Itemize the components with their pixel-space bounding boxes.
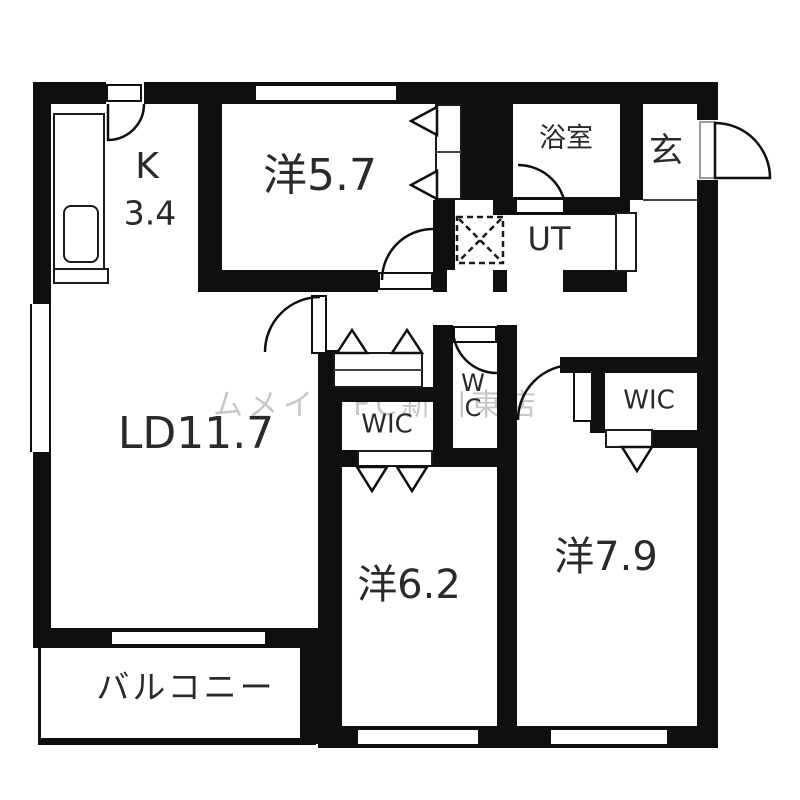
room-label-wc: W C (461, 371, 485, 421)
bedroom57-door-swing-icon (382, 229, 433, 280)
wic1-bifold-icon (357, 467, 387, 491)
room-label-kitchen: K (135, 148, 159, 186)
room-label-bedroom62: 洋6.2 (357, 564, 461, 606)
room-label-bedroom57: 洋5.7 (263, 153, 377, 199)
k-door-swing-icon (108, 104, 144, 140)
wic1-bifold-icon (397, 467, 427, 491)
floor-plan: ムメイトFC新川東店 (0, 0, 800, 800)
hall-closet-bifold-icon (392, 330, 422, 353)
room-label-bath: 浴室 (539, 125, 593, 153)
bath-door-swing-icon (518, 165, 566, 213)
room-label-wic2: WIC (623, 387, 675, 414)
room-label-bedroom79: 洋7.9 (554, 536, 658, 578)
room-label-entrance: 玄 (649, 134, 683, 170)
closet57-bifold-icon (411, 107, 437, 135)
room-label-balcony: バルコニー (96, 671, 275, 706)
room-label-wic1: WIC (361, 411, 413, 438)
entrance-door-swing-icon (715, 123, 770, 178)
wc-label-w: W (461, 371, 485, 396)
hall-closet-bifold-icon (337, 330, 367, 353)
room-label-utility: UT (528, 223, 571, 257)
washer-pan-icon (457, 217, 503, 263)
ld-door-swing-icon (265, 297, 320, 352)
room-label-kitchen-size: 3.4 (124, 197, 176, 232)
wc-door-swing-icon (453, 329, 497, 373)
room-label-living-dining: LD11.7 (118, 411, 274, 457)
wic2-bifold-icon (622, 447, 652, 471)
closet57-bifold-icon (411, 171, 437, 199)
wc-label-c: C (465, 396, 482, 421)
bedroom79-door-swing-icon (518, 365, 573, 420)
